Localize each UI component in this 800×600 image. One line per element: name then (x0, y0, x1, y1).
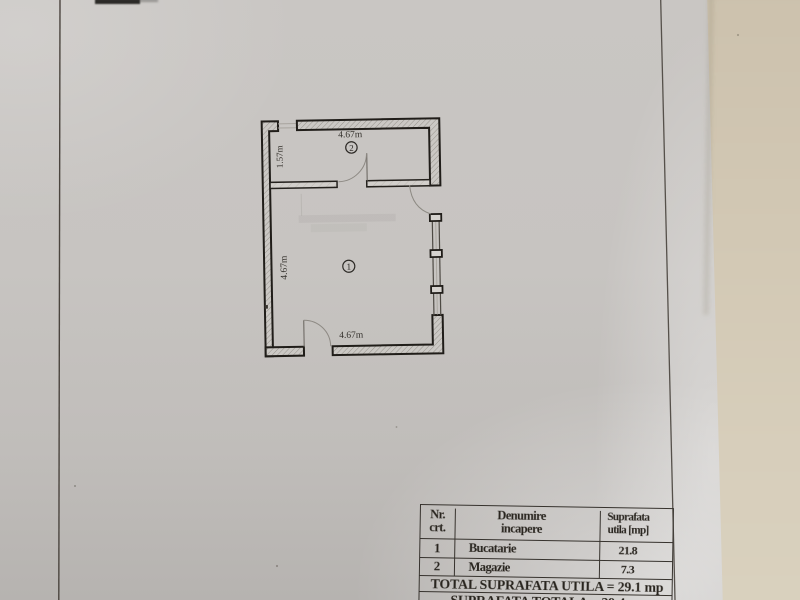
svg-text:1.57m: 1.57m (274, 145, 284, 168)
svg-text:2: 2 (349, 143, 354, 153)
svg-text:1: 1 (346, 263, 351, 273)
svg-text:4.67m: 4.67m (338, 130, 363, 140)
svg-text:4.67m: 4.67m (280, 255, 290, 280)
svg-text:4.67m: 4.67m (339, 331, 364, 341)
